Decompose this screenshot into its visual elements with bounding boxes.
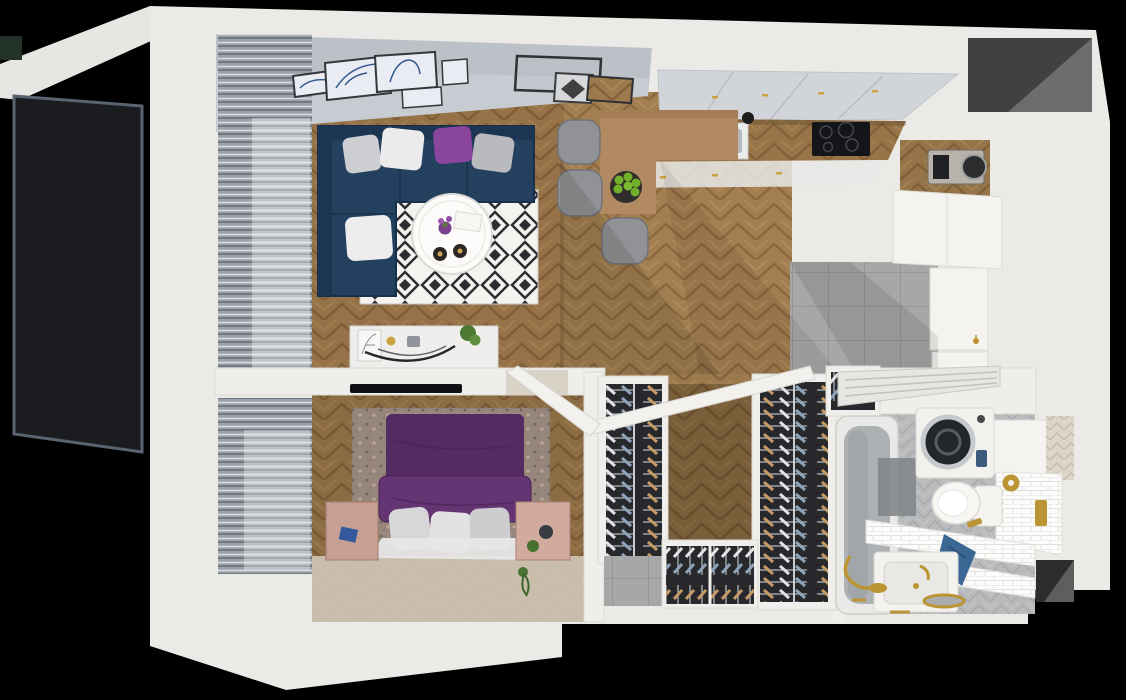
coffee-machine-panel xyxy=(933,155,949,179)
bathtub-inner-shade xyxy=(848,430,868,600)
art-frame-5 xyxy=(442,59,468,85)
utility-faucet xyxy=(973,338,979,344)
sideboard-device xyxy=(407,336,420,347)
sofa-pillow-white xyxy=(379,127,425,171)
washer-drum xyxy=(923,417,973,467)
bath-mat xyxy=(878,458,916,516)
sideboard-plant-2 xyxy=(470,335,481,346)
shower-head-gold xyxy=(869,583,887,593)
shower-control-gold xyxy=(1035,500,1047,526)
coffee-machine-drum xyxy=(962,155,986,179)
bed-throw-blanket xyxy=(368,538,540,560)
curtain-sheer-living xyxy=(252,118,310,370)
sofa-pillow-patterned xyxy=(342,134,383,175)
washer-knob xyxy=(977,415,985,423)
cabinet-handle-2 xyxy=(762,94,768,97)
cabinet-handle-3 xyxy=(818,92,824,95)
apple-6 xyxy=(631,188,640,197)
apple-4 xyxy=(614,185,623,194)
lower-handle-2 xyxy=(712,174,718,177)
flower-leaf xyxy=(443,223,448,228)
tp-roll-core xyxy=(1008,480,1014,486)
floorplan-render xyxy=(0,0,1126,700)
bedroom-floor-light-band xyxy=(312,556,584,622)
apple-2 xyxy=(624,173,633,182)
sideboard-knob xyxy=(387,337,396,346)
nightstand-right-plant xyxy=(527,540,539,552)
balcony-planter xyxy=(0,36,22,60)
dining-chair-1 xyxy=(558,120,600,164)
washer-detergent-tray xyxy=(976,450,987,467)
sofa-pillow-purple xyxy=(433,125,474,164)
coffee-table-card xyxy=(454,211,482,231)
lower-handle-3 xyxy=(776,172,782,175)
coffee-table xyxy=(412,194,492,274)
flower-1 xyxy=(438,218,444,224)
candle-2-flame xyxy=(458,249,463,254)
candle-1-flame xyxy=(438,252,443,257)
apple-5 xyxy=(624,182,633,191)
apple-1 xyxy=(615,176,624,185)
accent-chevron-tile xyxy=(1046,416,1074,480)
floorplan-stage xyxy=(0,0,1126,700)
cabinet-handle-1 xyxy=(712,96,718,99)
toilet-seat xyxy=(938,490,968,516)
art-wood-panel xyxy=(587,76,633,103)
balcony-screen-panel xyxy=(14,96,142,452)
flower-2 xyxy=(446,216,452,222)
sofa-pillow-chaise xyxy=(345,214,394,261)
curtain-sheer-bedroom xyxy=(244,430,310,570)
kettle xyxy=(742,112,754,124)
cabinet-handle-4 xyxy=(872,90,878,93)
apple-3 xyxy=(632,179,641,188)
induction-hob xyxy=(812,122,870,156)
sofa-pillow-gray xyxy=(471,132,516,173)
dining-table-shade xyxy=(600,110,738,118)
art-frame-3 xyxy=(375,52,437,92)
drain-gold xyxy=(913,583,919,589)
tall-unit-a xyxy=(930,268,988,350)
nightstand-right-bowl xyxy=(539,525,553,539)
bedroom-tv xyxy=(350,384,462,393)
sofa-back-left xyxy=(318,140,332,296)
art-frame-4 xyxy=(402,87,442,108)
mirror-gold-ring xyxy=(924,595,964,607)
vestibule-tiles xyxy=(604,556,662,606)
